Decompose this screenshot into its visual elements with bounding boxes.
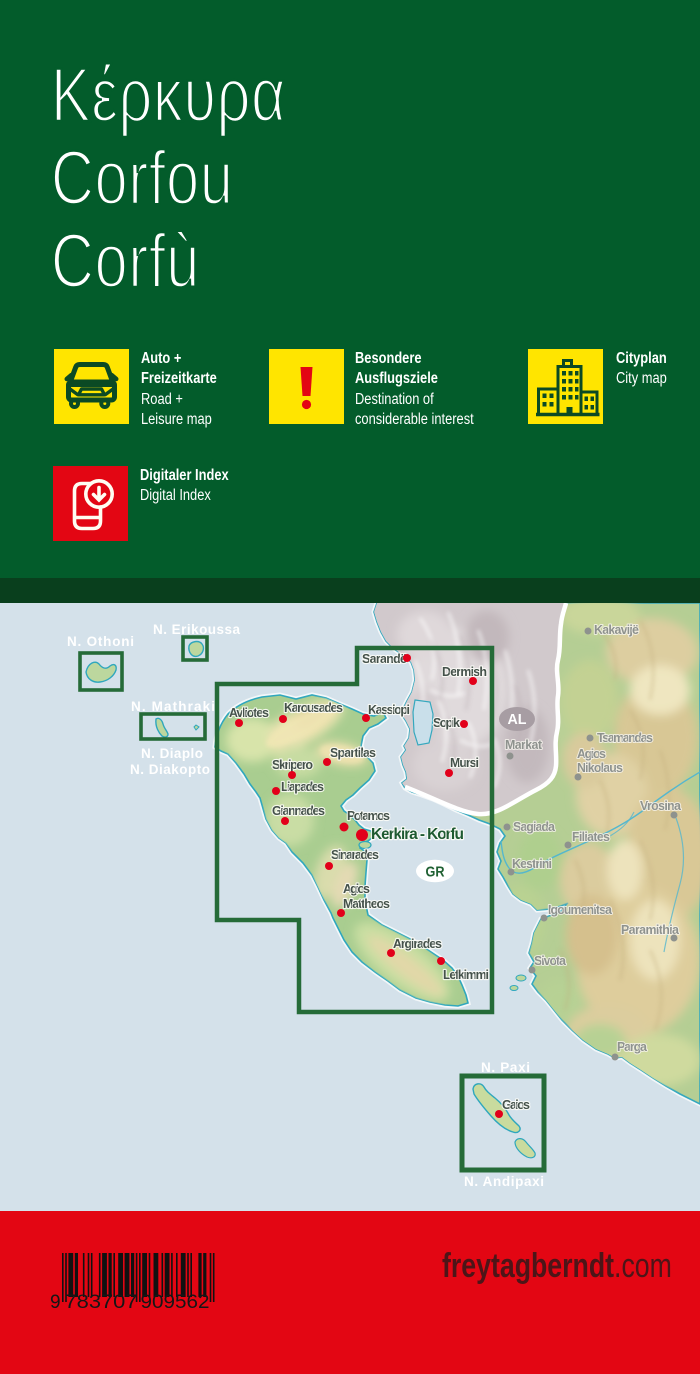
svg-text:783707: 783707 — [65, 1292, 138, 1313]
svg-text:Lefkimmi: Lefkimmi — [443, 968, 489, 982]
svg-text:Igoumenitsa: Igoumenitsa — [548, 903, 613, 917]
svg-text:Markat: Markat — [505, 738, 543, 752]
svg-text:Paramithia: Paramithia — [621, 923, 680, 937]
svg-text:Kassiopi: Kassiopi — [368, 703, 410, 717]
svg-text:AL: AL — [508, 712, 527, 728]
svg-text:Argirades: Argirades — [393, 937, 442, 951]
svg-text:909562: 909562 — [141, 1292, 210, 1313]
svg-text:Filiates: Filiates — [572, 830, 610, 844]
svg-text:N. Andipaxi: N. Andipaxi — [464, 1174, 544, 1189]
svg-text:Tsamandas: Tsamandas — [597, 731, 653, 745]
svg-text:Liapades: Liapades — [281, 780, 324, 794]
svg-text:N. Mathraki: N. Mathraki — [131, 699, 215, 714]
svg-text:Kakavijë: Kakavijë — [594, 623, 639, 637]
svg-text:N. Diaplo: N. Diaplo — [141, 746, 203, 761]
svg-text:N. Erikoussa: N. Erikoussa — [153, 622, 240, 637]
svg-text:Agios: Agios — [577, 747, 606, 761]
svg-text:Sagiada: Sagiada — [513, 820, 556, 834]
svg-text:Spartilas: Spartilas — [330, 746, 376, 760]
svg-text:N. Othoni: N. Othoni — [67, 634, 134, 649]
svg-text:Agios: Agios — [343, 882, 370, 896]
svg-text:Karousades: Karousades — [284, 701, 343, 715]
svg-text:Nikolaus: Nikolaus — [577, 761, 623, 775]
svg-text:Parga: Parga — [617, 1040, 648, 1054]
svg-text:Avliotes: Avliotes — [229, 706, 269, 720]
svg-text:Giannades: Giannades — [272, 804, 325, 818]
svg-text:Mursi: Mursi — [450, 756, 479, 770]
svg-text:Skripero: Skripero — [272, 758, 313, 772]
svg-text:Potamos: Potamos — [347, 809, 390, 823]
svg-text:9: 9 — [50, 1292, 61, 1313]
svg-text:Sinarades: Sinarades — [331, 848, 379, 862]
svg-text:Vrosina: Vrosina — [640, 799, 682, 813]
svg-text:N. Diakopto: N. Diakopto — [130, 762, 210, 777]
svg-text:Kestrini: Kestrini — [512, 857, 552, 871]
svg-text:Gaios: Gaios — [502, 1098, 530, 1112]
svg-text:Kerkira - Korfu: Kerkira - Korfu — [371, 826, 464, 843]
svg-text:Sopik: Sopik — [433, 716, 460, 730]
svg-text:N. Paxi: N. Paxi — [481, 1060, 530, 1075]
svg-text:GR: GR — [426, 864, 445, 881]
svg-text:Sivota: Sivota — [534, 954, 567, 968]
svg-text:Dermish: Dermish — [442, 665, 487, 679]
svg-text:Mattheos: Mattheos — [343, 897, 390, 911]
svg-text:Sarandë: Sarandë — [362, 652, 407, 666]
